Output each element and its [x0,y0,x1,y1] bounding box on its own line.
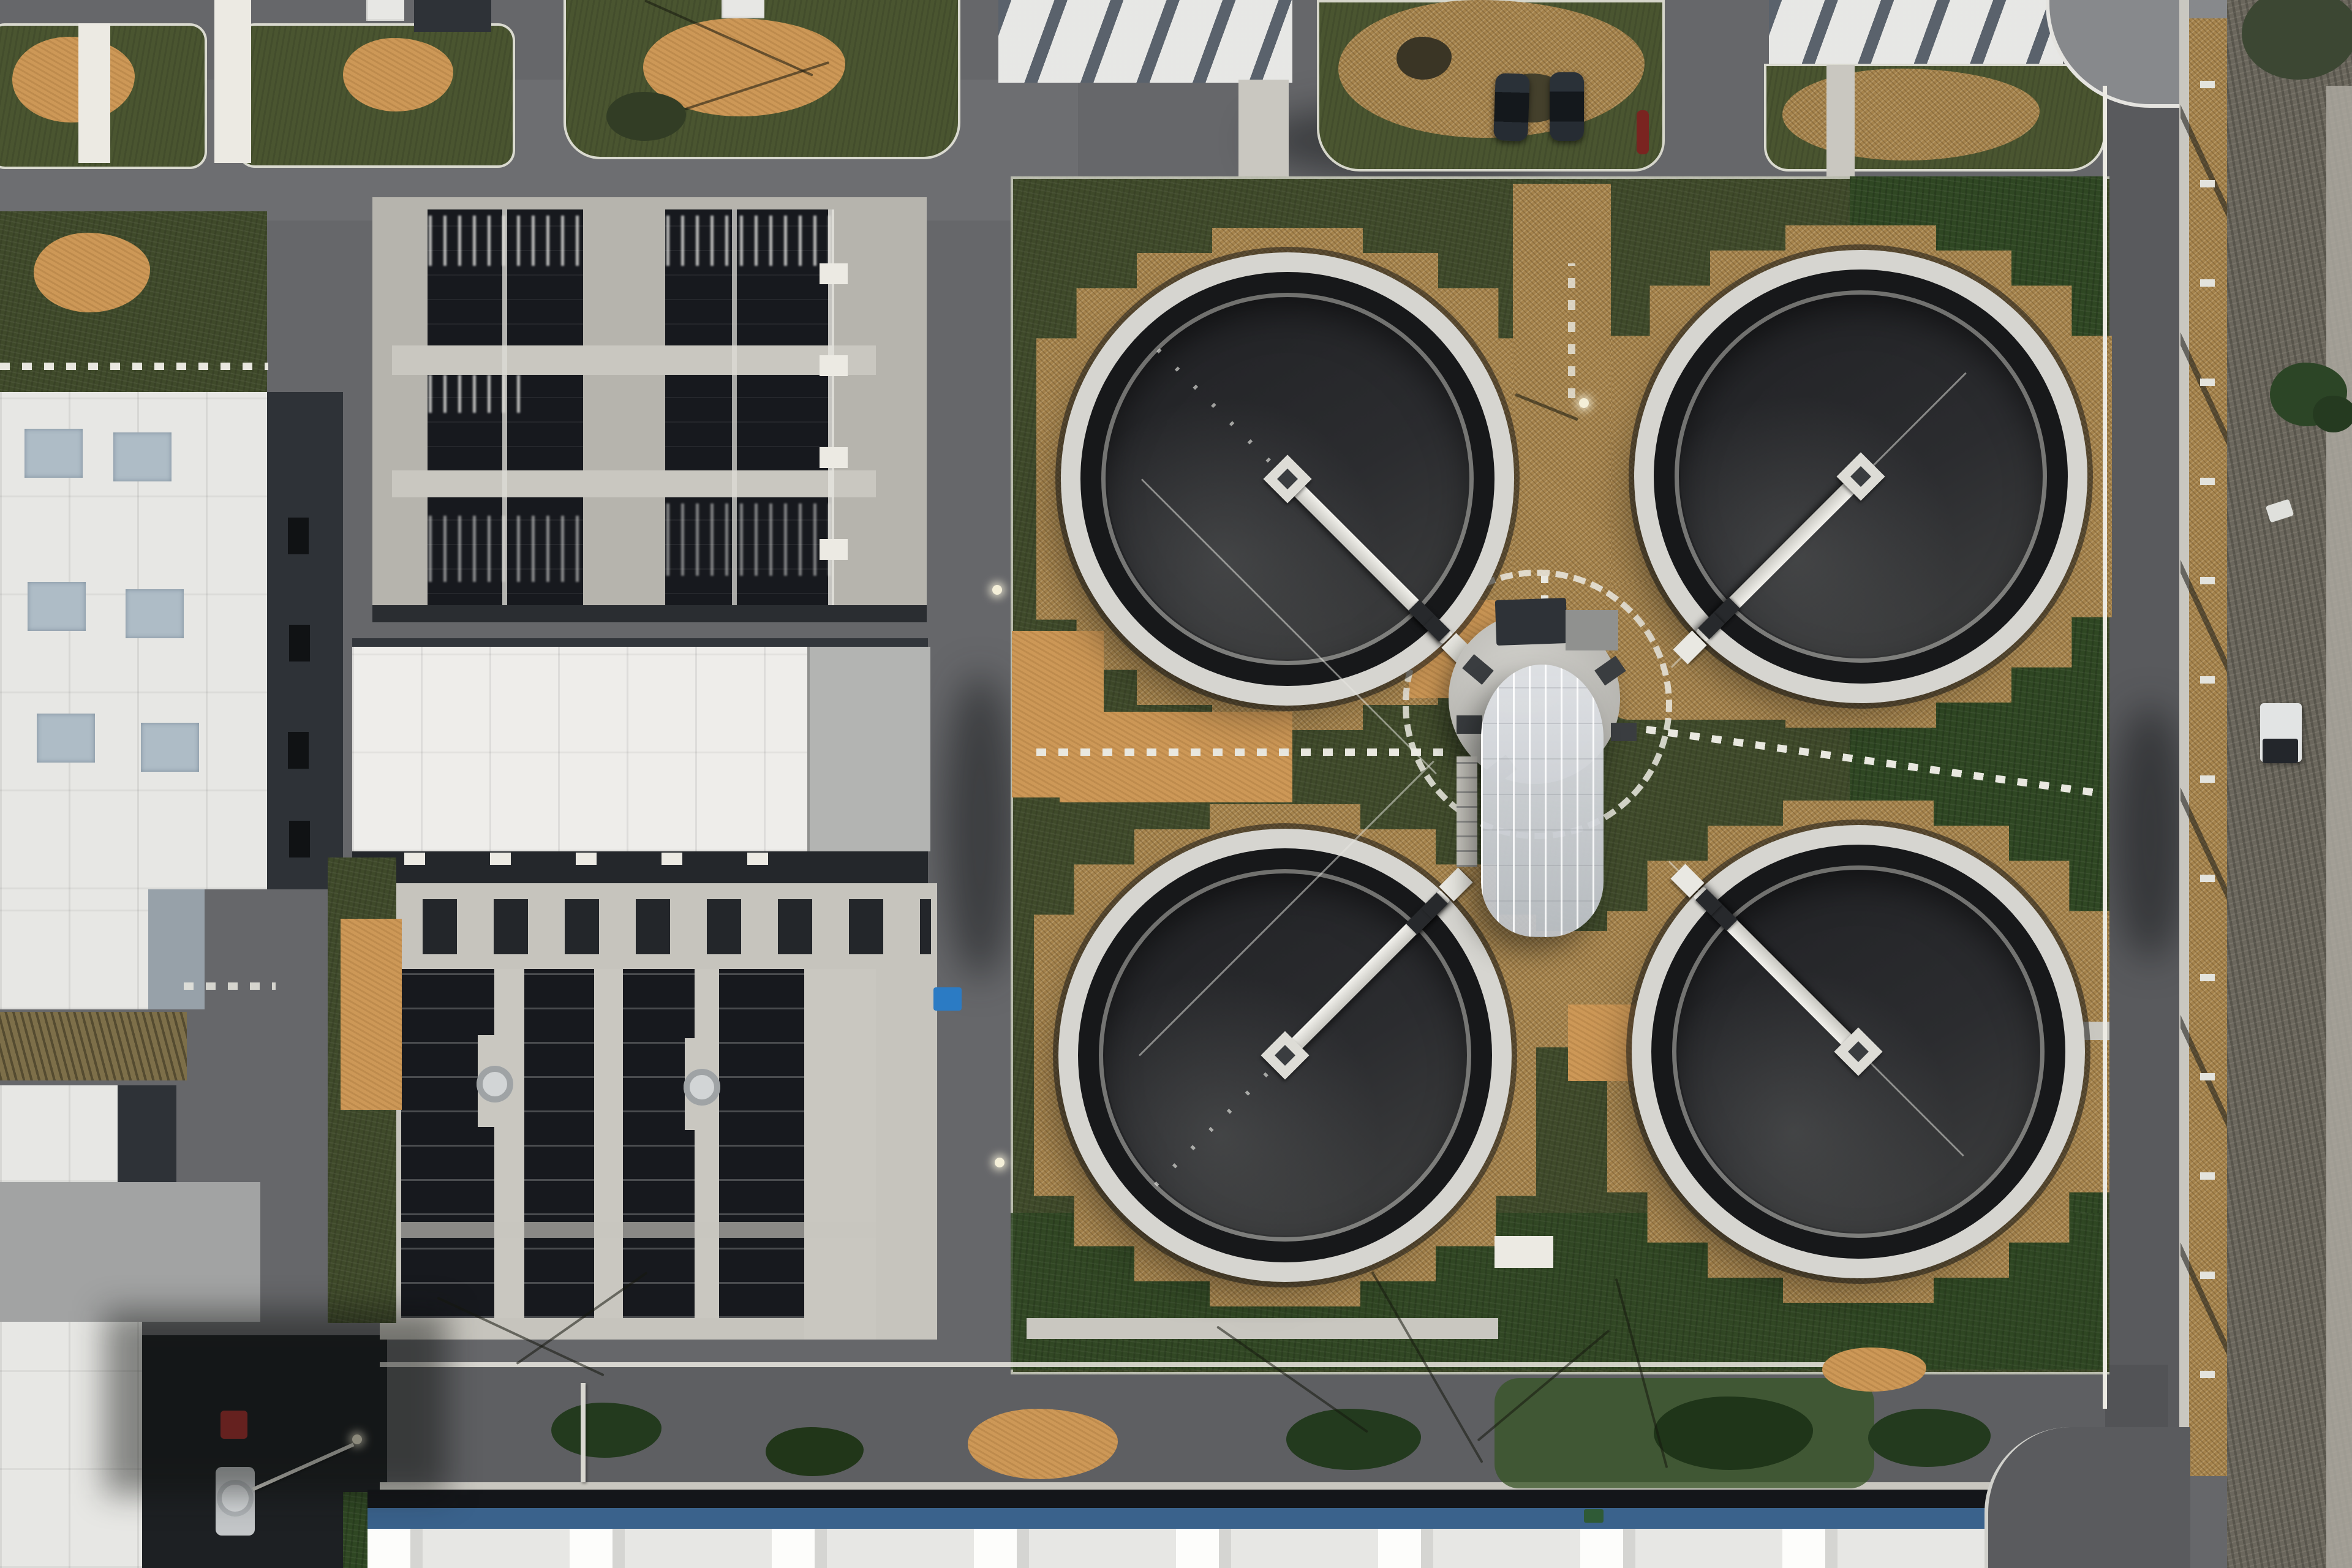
south-building-roof [367,1529,2021,1568]
cell-divider [695,969,719,1318]
wing-window [288,732,309,769]
streetlight-lamp [995,1158,1005,1167]
walkway [1826,65,1855,181]
roof-tab [404,853,425,865]
top-edge-structure [722,0,764,18]
walkway [1238,80,1289,187]
blue-dumpster [933,987,962,1011]
bottom-road-north-curb [380,1362,1850,1367]
green-dumpster [1584,1509,1604,1523]
hub-annex [1566,610,1618,650]
aeration-foam [666,503,831,576]
south-path [1027,1318,1498,1339]
process-building-roof-gray [807,647,930,851]
walkway [78,23,110,163]
basin-south-edge [372,605,927,622]
top-edge-building [414,0,491,32]
skylight-panel [126,589,184,638]
northeast-building-roof [1769,0,2063,69]
filter-cells [401,969,867,1318]
top-edge-structure [366,0,404,21]
scraper-wheel [684,1069,720,1106]
cell-right-apron [804,969,876,1340]
right-road-west-curb [2103,86,2107,1409]
parked-car [1550,72,1584,141]
skylight-panel [37,714,95,763]
wing-window [288,518,309,554]
streetlight-lamp [1579,398,1589,408]
cell-mid-walk [401,1222,876,1238]
dirt-patch [1060,712,1292,802]
hub-roof-panel [1495,598,1568,646]
walkway [214,0,251,163]
dirt-trail [2326,86,2352,1568]
cell-divider [494,969,524,1318]
hub-access-box [1611,723,1637,741]
bottom-right-road-curve [1985,1427,2190,1568]
equipment-pad [1494,1236,1553,1268]
basin-rail [732,209,737,619]
skylight-panel [28,582,86,631]
wing-window [289,625,310,661]
evergreen-tree [2313,396,2352,432]
aerial-photo-wastewater-plant: Top-down aerial drone photograph of a wa… [0,0,2352,1568]
dotted-walkway-west [1036,748,1445,756]
road-stain [2113,704,2187,962]
tree-shadow-mass [104,1311,447,1494]
fence-posts [2200,24,2215,1470]
aeration-foam [666,216,831,266]
skylight-panel [24,429,83,478]
skylight-panel [113,432,171,481]
west-building-3-wing [118,1085,176,1182]
trailer-cab [2263,739,2298,763]
fence-line [0,363,268,370]
roof-tab [490,853,511,865]
basin-cross-walkway [392,345,876,375]
service-yard [0,1182,260,1322]
rail-bracket [820,447,848,468]
basin-rail [502,209,507,619]
roof-north-edge [352,638,928,647]
greenhouse [1481,665,1604,937]
cell-divider [594,969,623,1318]
red-shrub [1637,110,1649,154]
parked-car [1493,73,1530,141]
roof-south-shadow [352,851,928,883]
dirt-patch [341,919,402,1110]
roof-tab [747,853,768,865]
dotted-walkway-between-tanks [1568,263,1575,398]
skylight-panel [141,723,199,772]
light-pole [581,1383,586,1482]
north-building-roof [998,0,1292,83]
hub-access-box [1457,715,1482,734]
scraper-wheel [477,1066,513,1102]
rail-bracket [820,355,848,376]
roof-tab [576,853,597,865]
wing-window [289,821,310,858]
west-building-2-roof [0,889,148,1009]
roof-tab [661,853,682,865]
hub-ladder-strip [1457,756,1477,867]
streetlight-lamp [992,585,1002,595]
basin-cross-walkway [392,470,876,497]
west-building-3-roof [0,1085,118,1182]
vent-row [423,899,931,954]
rail-bracket [820,263,848,284]
road-stain [943,674,1017,980]
rail-bracket [820,539,848,560]
west-building-2-annex [148,889,205,1009]
dead-brush-band [0,1012,187,1080]
fence-line [184,982,276,990]
